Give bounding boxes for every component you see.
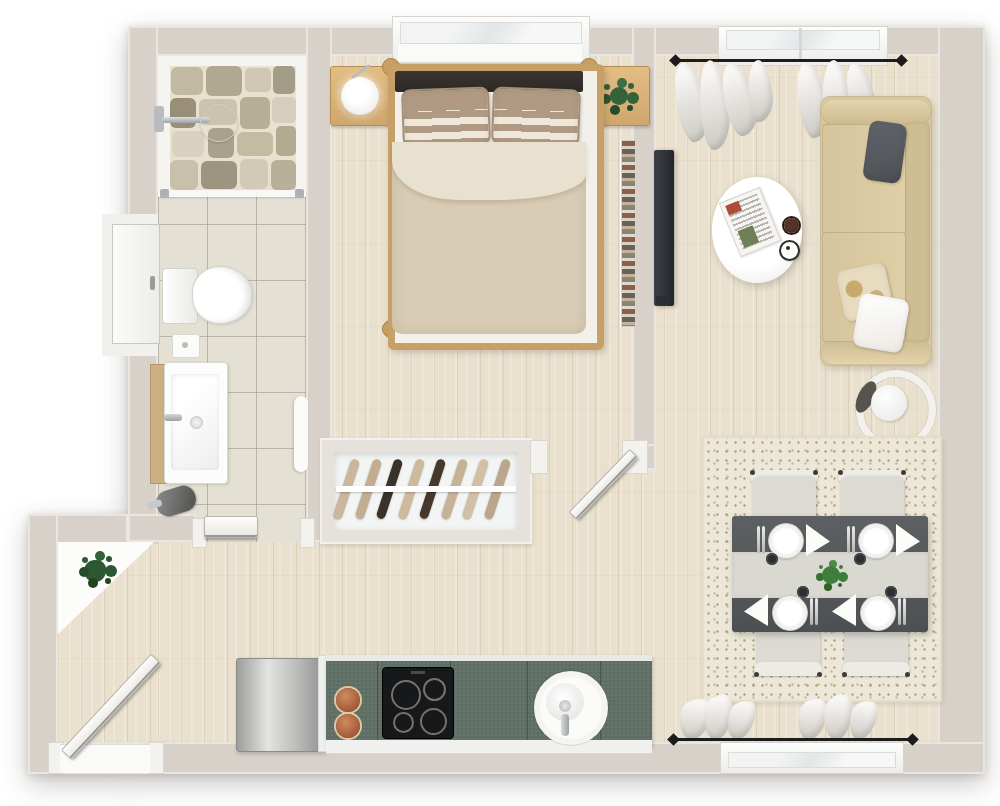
bed-pillow-right <box>491 86 581 147</box>
cutlery <box>903 598 906 625</box>
burner <box>393 712 414 733</box>
bathroom-door-open <box>204 516 258 538</box>
duvet-fold <box>392 142 586 200</box>
chair-leg <box>901 470 906 475</box>
nightstand-plant <box>610 87 628 105</box>
wall-bathroom-bottom <box>128 514 196 542</box>
glass-clamp-left <box>160 189 169 198</box>
basin-faucet <box>164 414 182 421</box>
burner <box>391 680 421 710</box>
door-handle <box>150 276 155 290</box>
toilet-bowl <box>192 266 252 324</box>
counter-seam <box>527 661 528 746</box>
table-lamp <box>341 77 379 115</box>
chair-backrest <box>754 662 822 676</box>
cooktop-controls <box>411 671 425 674</box>
counter-front <box>326 740 652 754</box>
coffee-cup <box>784 218 799 233</box>
cutlery <box>847 526 850 553</box>
chair-leg <box>838 470 843 475</box>
sofa-pillow-white <box>852 292 911 354</box>
wall-left-lower <box>28 514 58 774</box>
cutlery <box>810 598 813 625</box>
basin-drain <box>190 416 203 429</box>
shower-head <box>200 104 238 142</box>
bedroom-door-jamb-left <box>530 440 548 474</box>
copper-pan <box>336 688 360 712</box>
bedroom-window-sill <box>398 44 582 63</box>
faucet-head <box>559 700 571 712</box>
copper-pan <box>336 714 360 738</box>
burner <box>420 708 447 735</box>
tv-stand-foot <box>656 296 669 305</box>
floor-plan <box>0 0 1000 806</box>
window-mullion <box>799 28 802 62</box>
living-window-top-pane <box>726 30 880 50</box>
entry-door-jamb <box>148 742 164 774</box>
shower-glass-partition <box>158 190 306 197</box>
wardrobe-rail <box>336 486 516 492</box>
cutlery <box>757 526 760 553</box>
bed-pillow-left <box>401 86 491 147</box>
cutlery <box>898 598 901 625</box>
clock-coaster <box>779 240 800 261</box>
table-centerpiece-plant <box>822 566 840 584</box>
chair-leg <box>754 672 759 677</box>
plate <box>860 595 896 631</box>
hallway-plant <box>88 560 106 578</box>
cooktop <box>382 667 454 739</box>
clock-center <box>786 246 790 250</box>
chair-leg <box>817 672 822 677</box>
accessory-button <box>182 342 188 348</box>
chair-leg <box>813 470 818 475</box>
sink-faucet <box>561 714 569 736</box>
espresso-cup <box>766 553 778 565</box>
chair-leg <box>842 672 847 677</box>
plate <box>772 595 808 631</box>
chair-leg <box>905 672 910 677</box>
cutlery <box>852 526 855 553</box>
glass-clamp-right <box>295 189 304 198</box>
cutlery <box>815 598 818 625</box>
bath-door-jamb-right <box>300 518 315 548</box>
espresso-cup <box>797 586 809 598</box>
cutlery <box>762 526 765 553</box>
wall-right <box>938 26 985 774</box>
floor-lamp-globe <box>871 385 907 421</box>
chair-leg <box>750 470 755 475</box>
espresso-cup <box>885 586 897 598</box>
living-window-bottom-pane <box>728 752 896 768</box>
towel <box>294 396 308 472</box>
espresso-cup <box>854 553 866 565</box>
counter-seam <box>377 661 378 746</box>
burner <box>423 678 446 701</box>
tv <box>654 150 674 306</box>
bedroom-window-pane <box>400 22 582 44</box>
bookshelf <box>621 140 636 327</box>
curtain-rod-bottom <box>674 738 914 741</box>
chair-backrest <box>842 662 910 676</box>
fridge <box>236 658 326 752</box>
